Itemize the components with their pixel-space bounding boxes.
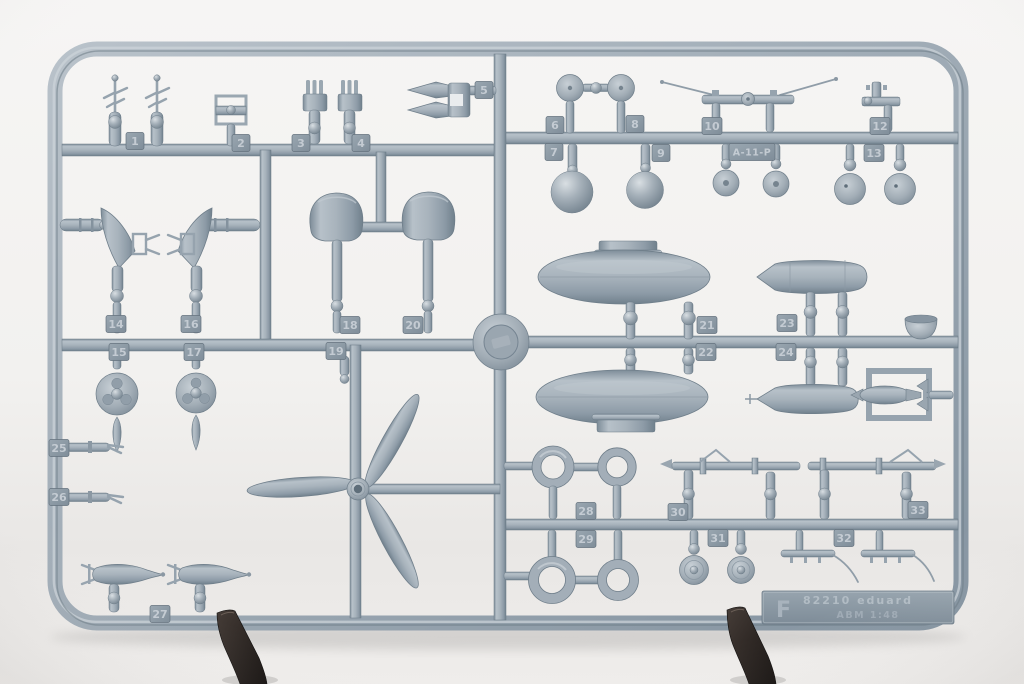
sprue-photo: 1 2 3 4 5 6 7 8 9 10 A-11-P 12 13 14 15 … [0,0,1024,684]
sprue-photo-canvas: 1 2 3 4 5 6 7 8 9 10 A-11-P 12 13 14 15 … [0,0,1024,684]
photo-vignette [0,0,1024,684]
